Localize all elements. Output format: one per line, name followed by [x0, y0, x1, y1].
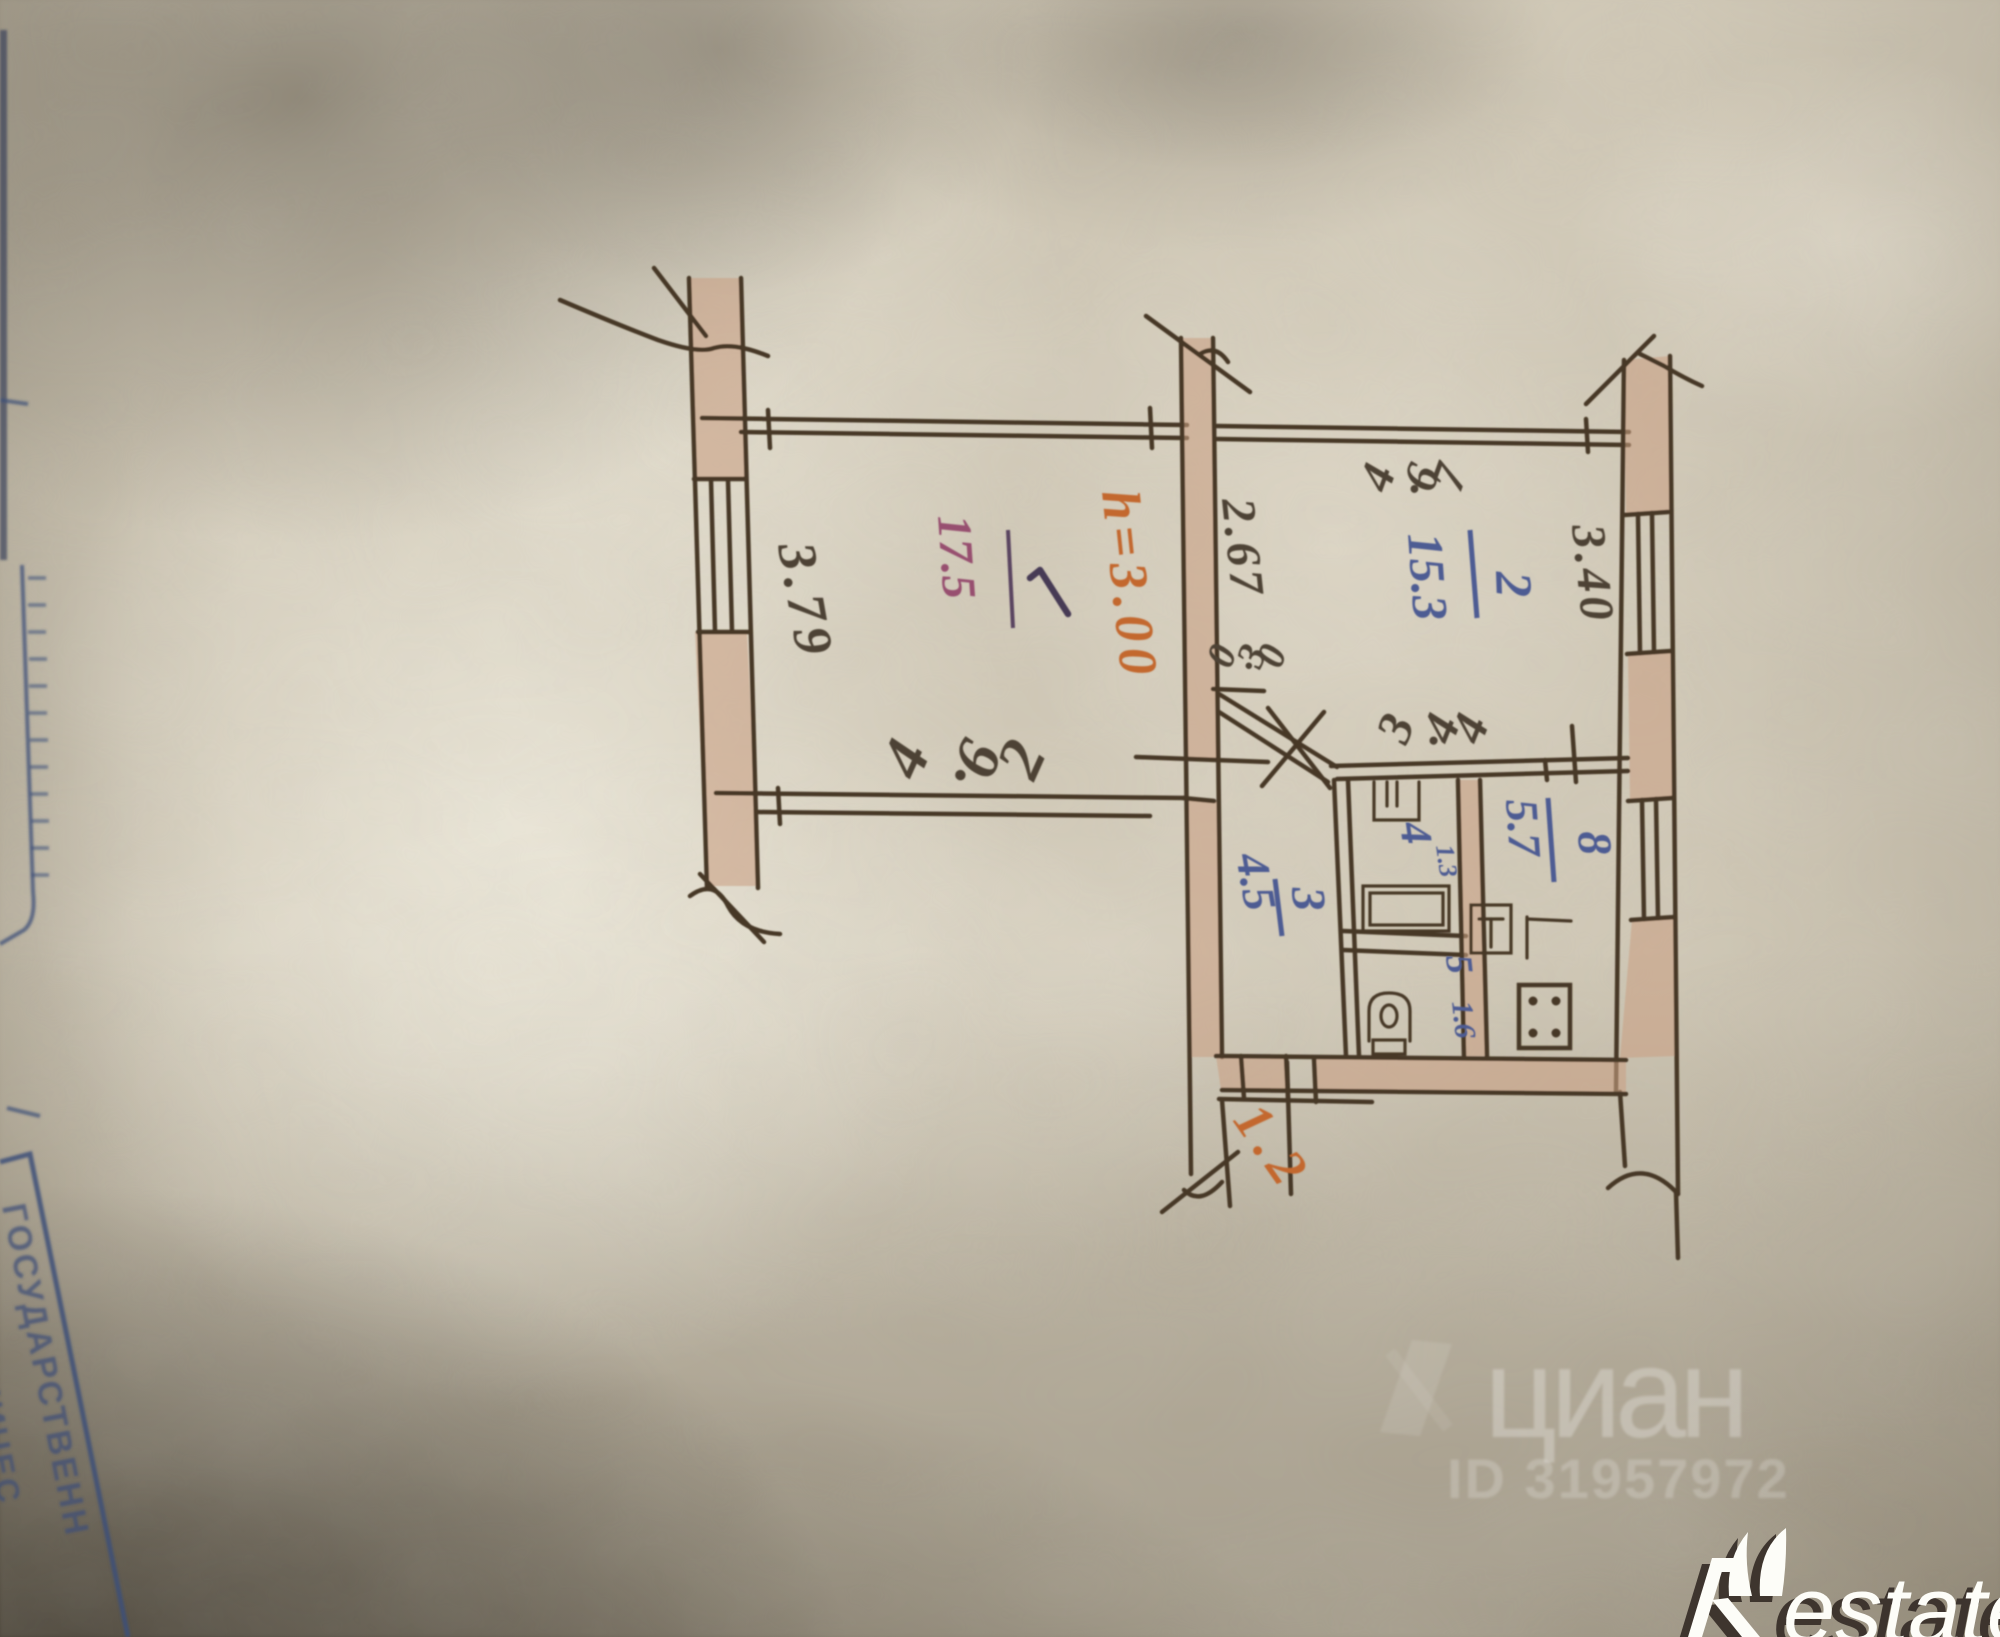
svg-text:2: 2	[1484, 569, 1542, 598]
svg-text:estate: estate	[1783, 1557, 2000, 1637]
svg-text:3.40: 3.40	[1561, 521, 1624, 627]
svg-text:1.6: 1.6	[1445, 999, 1482, 1040]
svg-text:1.3: 1.3	[1430, 843, 1463, 879]
svg-text:циан: циан	[1484, 1322, 1743, 1465]
svg-text:8: 8	[1567, 829, 1622, 857]
svg-text:15.3: 15.3	[1397, 531, 1459, 622]
svg-text:5.7: 5.7	[1496, 797, 1551, 860]
svg-text:2.67: 2.67	[1211, 495, 1274, 601]
svg-text:ID 31957972: ID 31957972	[1447, 1447, 1790, 1510]
svg-text:17.5: 17.5	[927, 513, 986, 600]
svg-text:3: 3	[1281, 884, 1336, 913]
